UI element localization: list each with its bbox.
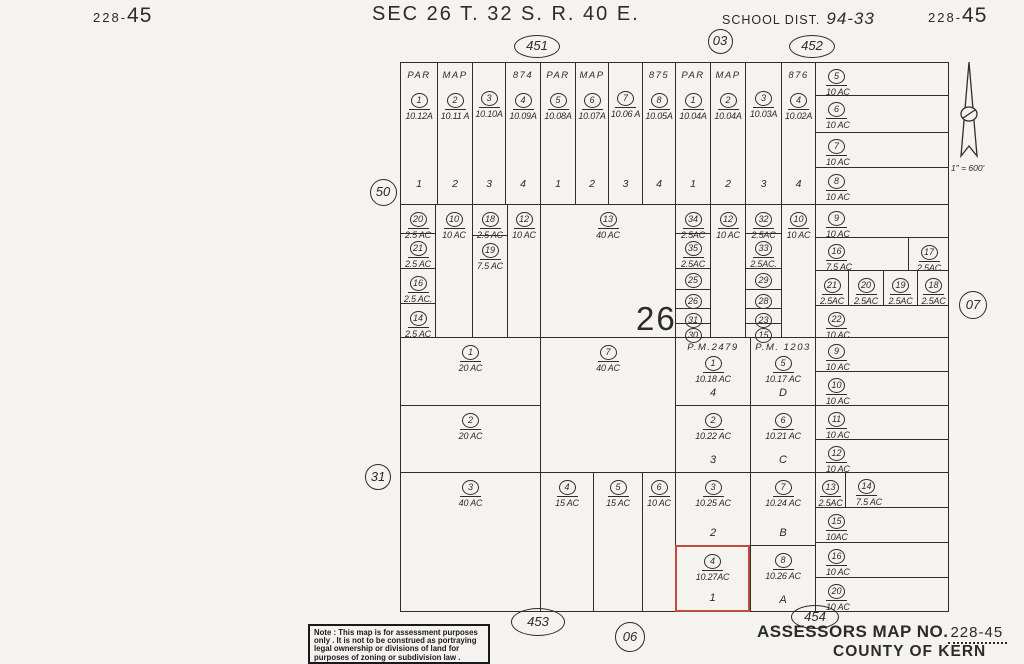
- parcel-number: 34: [685, 212, 702, 227]
- lot-number: 3: [473, 178, 505, 190]
- parcel-number: 14: [858, 479, 875, 494]
- parcel-15: 1510AC: [815, 507, 949, 542]
- parcel-number: 20: [410, 212, 427, 227]
- parcel-acreage: 10AC: [826, 532, 949, 542]
- parcel-16: 162.5 AC.: [400, 268, 435, 303]
- school-district-value: 94-33: [826, 9, 874, 28]
- parcel-number: 5: [775, 356, 792, 371]
- tract-label: P.M. 1203: [751, 342, 815, 353]
- parcel-number: 18: [482, 212, 499, 227]
- parcel-10: 1010 AC: [781, 204, 815, 337]
- parcel-14: 142.5 AC: [400, 303, 435, 337]
- scale-label: 1" = 600': [951, 163, 984, 173]
- map-ref-marker-452: 452: [789, 35, 835, 58]
- parcel-23: 23: [745, 308, 781, 323]
- parcel-16: 1610 AC: [815, 542, 949, 577]
- parcel-acreage: 15 AC: [594, 498, 642, 508]
- parcel-25: 25: [675, 268, 710, 289]
- lot-number: 1: [541, 178, 575, 190]
- map-ref-marker-06: 06: [615, 622, 645, 652]
- parcel-4: 410.27AC1: [675, 545, 750, 612]
- lot-number: D: [751, 387, 815, 399]
- parcel-17: 172.5AC: [908, 237, 949, 270]
- parcel-number: 10: [446, 212, 463, 227]
- map-ref-number: 45: [962, 4, 987, 27]
- parcel-number: 7: [828, 139, 845, 154]
- parcel-number: 7: [775, 480, 792, 495]
- map-ref-marker-07: 07: [959, 291, 987, 319]
- parcel-35: 352.5AC: [675, 233, 710, 268]
- parcel-number: 13: [600, 212, 617, 227]
- parcel-number: 6: [775, 413, 792, 428]
- parcel-number: 3: [705, 480, 722, 495]
- lot-number: 2: [711, 178, 745, 190]
- parcel-acreage: 15 AC: [541, 498, 593, 508]
- parcel-acreage: 10 AC: [508, 230, 540, 240]
- parcel-number: 16: [828, 549, 845, 564]
- parcel-number: 8: [775, 553, 792, 568]
- parcel-acreage: 40 AC: [541, 230, 675, 240]
- parcel-number: 3: [755, 91, 772, 106]
- parcel-number: 33: [755, 241, 772, 256]
- parcel-acreage: 10.05A: [643, 111, 675, 121]
- map-ref-marker-03: 03: [708, 29, 733, 54]
- parcel-3: 310.03A3: [745, 62, 781, 204]
- parcel-22: 2210 AC: [815, 305, 949, 337]
- parcel-number: 6: [651, 480, 668, 495]
- parcel-acreage: 10 AC: [436, 230, 472, 240]
- note-box: Note : This map is for assessment purpos…: [308, 624, 490, 664]
- parcel-15: 15: [745, 323, 781, 337]
- parcel-acreage: 10.12A: [401, 111, 437, 121]
- parcel-1: 120 AC: [400, 337, 540, 405]
- parcel-2: MAP210.04A2: [710, 62, 745, 204]
- parcel-5: 515 AC: [593, 472, 642, 612]
- parcel-acreage: 7.5 AC: [473, 261, 507, 271]
- parcel-9: 910 AC: [815, 337, 949, 371]
- parcel-number: 11: [828, 412, 845, 427]
- tract-label: 875: [643, 70, 675, 81]
- parcel-11: 1110 AC: [815, 405, 949, 439]
- tract-label: 876: [782, 70, 815, 81]
- parcel-acreage: 10.10A: [473, 109, 505, 119]
- parcel-3: 310.10A3: [472, 62, 505, 204]
- lot-number: 2: [576, 178, 608, 190]
- parcel-1: PAR110.12A1: [400, 62, 437, 204]
- parcel-acreage: 10.27AC: [677, 572, 748, 582]
- parcel-acreage: 10 AC: [782, 230, 815, 240]
- lot-number: 2: [676, 527, 750, 539]
- parcel-number: 19: [482, 243, 499, 258]
- map-ref-top-right: 228-45: [928, 4, 987, 28]
- parcel-number: 17: [921, 245, 938, 260]
- section-township-title: SEC 26 T. 32 S. R. 40 E.: [372, 3, 640, 26]
- parcel-acreage: 10 AC: [643, 498, 675, 508]
- map-ref-marker-50: 50: [370, 179, 397, 206]
- parcel-28: 28: [745, 289, 781, 308]
- parcel-number: 35: [685, 241, 702, 256]
- parcel-18: 182.5 AC: [472, 204, 507, 235]
- parcel-number: 19: [892, 278, 909, 293]
- parcel-3: 310.25 AC2: [675, 472, 750, 545]
- parcel-number: 32: [755, 212, 772, 227]
- parcel-number: 29: [755, 273, 772, 288]
- parcel-number: 21: [824, 278, 841, 293]
- parcel-number: 14: [410, 311, 427, 326]
- lot-number: 2: [438, 178, 472, 190]
- parcel-number: 4: [515, 93, 532, 108]
- parcel-2: 220 AC: [400, 405, 540, 472]
- parcel-number: 10: [828, 378, 845, 393]
- map-ref-marker-31: 31: [365, 464, 391, 490]
- parcel-19: 197.5 AC: [472, 235, 507, 337]
- parcel-20: 2010 AC: [815, 577, 949, 612]
- parcel-16: 167.5 AC: [815, 237, 908, 270]
- parcel-34: 342.5AC: [675, 204, 710, 233]
- parcel-number: 12: [828, 446, 845, 461]
- parcel-number: 9: [828, 344, 845, 359]
- tract-label: MAP: [576, 70, 608, 81]
- parcel-number: 4: [790, 93, 807, 108]
- assessor-map-no-value: 228-45: [948, 624, 1007, 644]
- parcel-5: PAR510.08A1: [540, 62, 575, 204]
- parcel-29: 29: [745, 268, 781, 289]
- parcel-acreage: 10.17 AC: [751, 374, 815, 384]
- parcel-1: P.M.2479110.18 AC4: [675, 337, 750, 405]
- parcel-acreage: 10 AC: [826, 192, 949, 202]
- parcel-30: 30: [675, 323, 710, 337]
- parcel-7: 710.06 A3: [608, 62, 642, 204]
- parcel-7: 740 AC: [540, 337, 675, 472]
- parcel-32: 322.5AC: [745, 204, 781, 233]
- parcel-acreage: 10.22 AC: [676, 431, 750, 441]
- map-ref-marker-451: 451: [514, 35, 560, 58]
- parcel-acreage: 10.11 A: [438, 111, 472, 121]
- parcel-number: 28: [755, 294, 772, 309]
- parcel-2: MAP210.11 A2: [437, 62, 472, 204]
- school-district-label: SCHOOL DIST.: [722, 13, 820, 27]
- parcel-number: 6: [584, 93, 601, 108]
- parcel-5: 510 AC: [815, 62, 949, 95]
- parcel-33: 332.5AC.: [745, 233, 781, 268]
- parcel-acreage: 10.18 AC: [676, 374, 750, 384]
- parcel-acreage: 10 AC: [826, 120, 949, 130]
- parcel-number: 10: [790, 212, 807, 227]
- lot-number: C: [751, 454, 815, 466]
- parcel-acreage: 10 AC: [826, 157, 949, 167]
- parcel-number: 12: [720, 212, 737, 227]
- parcel-6: MAP610.07A2: [575, 62, 608, 204]
- parcel-number: 5: [610, 480, 627, 495]
- parcel-acreage: 20 AC: [401, 431, 540, 441]
- lot-number: 1: [401, 178, 437, 190]
- parcel-number: 3: [481, 91, 498, 106]
- parcel-number: 13: [822, 480, 839, 495]
- lot-number: 4: [506, 178, 540, 190]
- parcel-19: 192.5AC: [883, 270, 917, 305]
- county-title: COUNTY OF KERN: [833, 643, 986, 661]
- parcel-number: 7: [617, 91, 634, 106]
- parcel-acreage: 20 AC: [401, 363, 540, 373]
- parcel-number: 16: [828, 244, 845, 259]
- parcel-13: 132.5AC: [815, 472, 845, 507]
- parcel-6: 610 AC: [642, 472, 675, 612]
- parcel-acreage: 10.25 AC: [676, 498, 750, 508]
- lot-number: 4: [643, 178, 675, 190]
- lot-number: B: [751, 527, 815, 539]
- parcel-number: 5: [550, 93, 567, 108]
- tract-label: PAR: [541, 70, 575, 81]
- parcel-acreage: 10.04A: [676, 111, 710, 121]
- parcel-acreage: 10.26 AC: [751, 571, 815, 581]
- parcel-21: 212.5AC: [815, 270, 848, 305]
- parcel-6: 610.21 ACC: [750, 405, 815, 472]
- parcel-number: 20: [858, 278, 875, 293]
- parcel-8: 875810.05A4: [642, 62, 675, 204]
- lot-number: 3: [609, 178, 642, 190]
- parcel-acreage: 10.08A: [541, 111, 575, 121]
- tract-label: PAR: [401, 70, 437, 81]
- parcel-1: PAR110.04A1: [675, 62, 710, 204]
- map-ref-marker-454: 454: [791, 605, 839, 629]
- parcel-20: 202.5AC: [848, 270, 883, 305]
- parcel-acreage: 10.09A: [506, 111, 540, 121]
- tract-label: MAP: [438, 70, 472, 81]
- parcel-number: 5: [828, 69, 845, 84]
- parcel-12: 1210 AC: [815, 439, 949, 472]
- assessor-map-no: ASSESSORS MAP NO.228-45: [757, 622, 1007, 642]
- parcel-20: 202.5 AC: [400, 204, 435, 233]
- tract-label: P.M.2479: [676, 342, 750, 353]
- map-ref-number: 45: [127, 4, 152, 27]
- parcel-8: 810 AC: [815, 167, 949, 204]
- parcel-acreage: 10.07A: [576, 111, 608, 121]
- parcel-acreage: 10.04A: [711, 111, 745, 121]
- parcel-9: 910 AC: [815, 204, 949, 237]
- lot-number: 4: [676, 387, 750, 399]
- parcel-number: 2: [462, 413, 479, 428]
- parcel-12: 1210 AC: [507, 204, 540, 337]
- parcel-10: 1010 AC: [815, 371, 949, 405]
- note-line: purposes of zoning or subdivision law .: [314, 654, 484, 662]
- parcel-acreage: 10.03A: [746, 109, 781, 119]
- parcel-acreage: 40 AC: [401, 498, 540, 508]
- lot-number: 1: [677, 592, 748, 604]
- parcel-acreage: 10.21 AC: [751, 431, 815, 441]
- parcel-8: 810.26 ACA: [750, 545, 815, 612]
- lot-number: 3: [676, 454, 750, 466]
- tract-label: 874: [506, 70, 540, 81]
- parcel-acreage: 10.24 AC: [751, 498, 815, 508]
- parcel-7: 710.24 ACB: [750, 472, 815, 545]
- parcel-number: 4: [704, 554, 721, 569]
- parcel-2: 210.22 AC3: [675, 405, 750, 472]
- parcel-number: 26: [685, 294, 702, 309]
- parcel-5: P.M. 1203510.17 ACD: [750, 337, 815, 405]
- parcel-number: 7: [600, 345, 617, 360]
- parcel-acreage: 10.02A: [782, 111, 815, 121]
- parcel-number: 3: [462, 480, 479, 495]
- parcel-acreage: 7.5 AC: [856, 497, 949, 507]
- parcel-acreage: 10 AC: [826, 602, 949, 612]
- school-district: SCHOOL DIST.94-33: [722, 9, 875, 29]
- parcel-number: 18: [925, 278, 942, 293]
- parcel-4: 876410.02A4: [781, 62, 815, 204]
- tract-label: PAR: [676, 70, 710, 81]
- parcel-4: 415 AC: [540, 472, 593, 612]
- parcel-number: 9: [828, 211, 845, 226]
- parcel-12: 1210 AC: [710, 204, 745, 337]
- parcel-21: 212.5 AC: [400, 233, 435, 268]
- parcel-number: 2: [705, 413, 722, 428]
- parcel-number: 1: [411, 93, 428, 108]
- north-arrow-icon: [956, 60, 984, 162]
- parcel-number: 4: [559, 480, 576, 495]
- lot-number: A: [751, 594, 815, 606]
- parcel-number: 12: [516, 212, 533, 227]
- map-ref-marker-453: 453: [511, 608, 565, 636]
- parcel-number: 22: [828, 312, 845, 327]
- parcel-number: 2: [447, 93, 464, 108]
- parcel-acreage: 40 AC: [541, 363, 675, 373]
- parcel-acreage: 10 AC: [711, 230, 745, 240]
- map-ref-prefix: 228-: [928, 10, 962, 25]
- parcel-number: 16: [410, 276, 427, 291]
- parcel-number: 25: [685, 273, 702, 288]
- assessor-map-no-label: ASSESSORS MAP NO.: [757, 622, 948, 641]
- parcel-acreage: 10 AC: [826, 567, 949, 577]
- parcel-7: 710 AC: [815, 132, 949, 167]
- parcel-number: 21: [410, 241, 427, 256]
- parcel-number: 1: [462, 345, 479, 360]
- map-ref-top-left: 228-45: [93, 4, 152, 28]
- parcel-18: 182.5AC: [917, 270, 949, 305]
- parcel-3: 340 AC: [400, 472, 540, 612]
- parcel-6: 610 AC: [815, 95, 949, 132]
- parcel-4: 874410.09A4: [505, 62, 540, 204]
- parcel-number: 2: [720, 93, 737, 108]
- section-number: 26: [636, 300, 677, 338]
- lot-number: 4: [782, 178, 815, 190]
- parcel-number: 1: [705, 356, 722, 371]
- parcel-number: 15: [828, 514, 845, 529]
- parcel-number: 20: [828, 584, 845, 599]
- map-ref-prefix: 228-: [93, 10, 127, 25]
- parcel-10: 1010 AC: [435, 204, 472, 337]
- parcel-number: 6: [828, 102, 845, 117]
- lot-number: 1: [676, 178, 710, 190]
- parcel-14: 147.5 AC: [845, 472, 949, 507]
- tract-label: MAP: [711, 70, 745, 81]
- assessor-map-page: { "header": { "ref_left_small": "228-", …: [0, 0, 1024, 663]
- parcel-acreage: 10.06 A: [609, 109, 642, 119]
- parcel-number: 8: [828, 174, 845, 189]
- parcel-31: 31: [675, 308, 710, 323]
- parcel-26: 26: [675, 289, 710, 308]
- parcel-number: 8: [651, 93, 668, 108]
- parcel-number: 1: [685, 93, 702, 108]
- lot-number: 3: [746, 178, 781, 190]
